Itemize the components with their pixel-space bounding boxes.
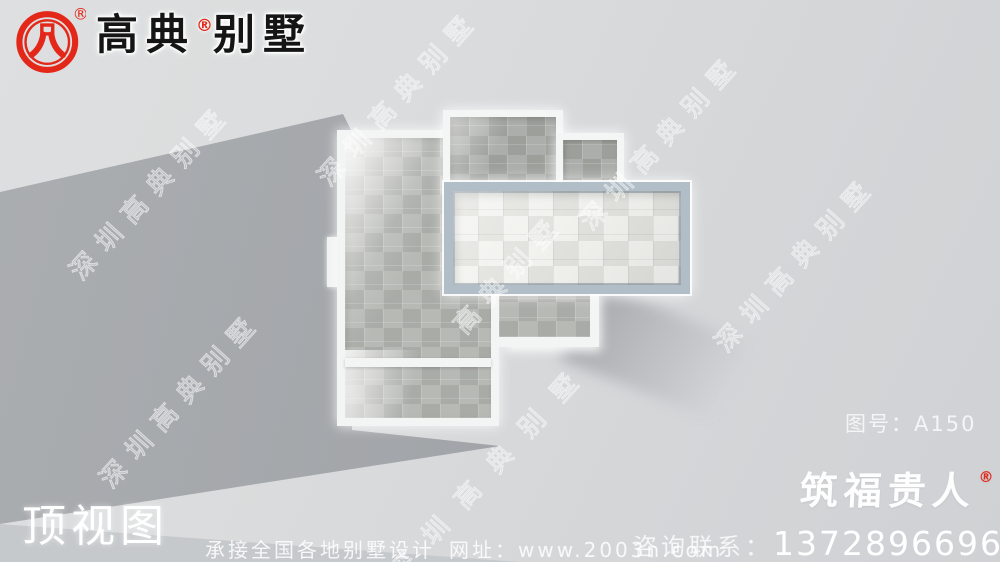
- footer-contact-line: 咨询联系：13728966966: [633, 524, 1000, 562]
- secondary-brand-name: 筑福贵人: [799, 469, 977, 513]
- villa-top-view-render: 深圳高典别墅 深圳高典别墅 深圳高典别墅 高典别墅 深圳高典别墅 深圳高典别墅 …: [0, 0, 1000, 562]
- brand-registered-mark: ®: [196, 16, 213, 36]
- watermark-text: 深圳高典别墅: [705, 165, 885, 359]
- drawing-number: 图号：A150: [845, 408, 976, 438]
- service-text: 承接全国各地别墅设计: [205, 538, 435, 562]
- secondary-brand-registered-mark: ®: [978, 468, 994, 486]
- website-label: 网址：: [449, 538, 518, 562]
- contact-phone-number: 13728966966: [773, 524, 1000, 562]
- roof-section-upper-middle: [443, 110, 563, 190]
- brand-header: ® 高典®别墅: [14, 6, 313, 74]
- logo-registered-mark: ®: [72, 6, 86, 24]
- roof-terrace-light-rect: [444, 182, 690, 294]
- secondary-brand: 筑福贵人®: [799, 460, 993, 515]
- gaodian-logo-icon: ®: [14, 6, 86, 74]
- brand-name: 高典®别墅: [96, 10, 313, 60]
- brand-name-suffix: 别墅: [213, 10, 313, 59]
- view-label: 顶视图: [22, 490, 169, 554]
- roof-divider-wall: [345, 358, 491, 367]
- contact-label: 咨询联系：: [633, 533, 773, 561]
- brand-name-prefix: 高典: [96, 10, 196, 59]
